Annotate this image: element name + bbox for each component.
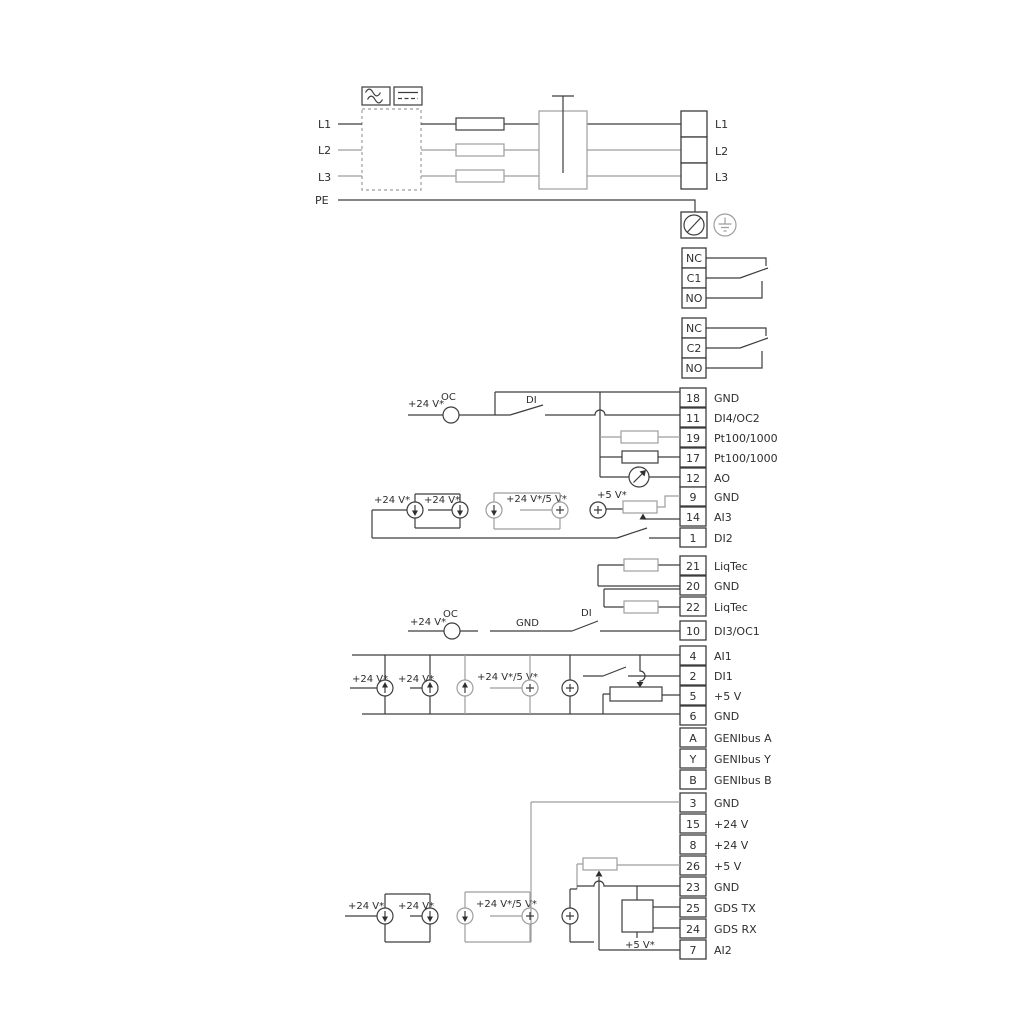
svg-text:3: 3 xyxy=(690,797,697,810)
relay2-block: NC C2 NO xyxy=(682,318,768,378)
svg-text:5: 5 xyxy=(690,690,697,703)
digital-input-4-wiring: +24 V* OC DI xyxy=(408,392,680,487)
svg-text:LiqTec: LiqTec xyxy=(714,601,748,614)
ai1-wiring: +24 V* +24 V* +24 V*/5 V* xyxy=(350,655,680,714)
terminal-row: 10DI3/OC1 xyxy=(680,621,760,640)
terminal-row: 7AI2 xyxy=(680,940,732,959)
svg-text:GND: GND xyxy=(714,710,739,723)
svg-text:+5 V: +5 V xyxy=(714,690,742,703)
svg-text:14: 14 xyxy=(686,511,700,524)
svg-text:GND: GND xyxy=(714,580,739,593)
mains-input-section: L1 L2 L3 PE xyxy=(315,87,736,238)
mains-output-label: L1 xyxy=(715,118,728,131)
terminal-row: 23GND xyxy=(680,877,739,896)
svg-text:+24 V: +24 V xyxy=(714,839,749,852)
v24-label: +24 V* xyxy=(398,901,434,912)
terminal-row: 21LiqTec xyxy=(680,556,748,575)
svg-text:15: 15 xyxy=(686,818,700,831)
v5-label: +5 V* xyxy=(597,490,627,501)
gnd-label: GND xyxy=(516,618,539,629)
svg-text:B: B xyxy=(689,774,697,787)
svg-text:9: 9 xyxy=(690,491,697,504)
relay-terminal: C2 xyxy=(687,342,702,355)
svg-text:23: 23 xyxy=(686,881,700,894)
di1-switch xyxy=(583,667,680,676)
wire-l3 xyxy=(338,166,681,182)
svg-text:GENIbus A: GENIbus A xyxy=(714,732,772,745)
relay-contact xyxy=(706,258,768,298)
open-collector-icon xyxy=(443,407,459,423)
svg-text:AO: AO xyxy=(714,472,730,485)
ai2-gds-wiring: +5 V* +24 V* +24 V* +24 V*/5 V* xyxy=(345,802,680,951)
svg-text:19: 19 xyxy=(686,432,700,445)
terminal-row: 9GND xyxy=(680,487,739,506)
voltage-source-icon xyxy=(562,908,578,924)
gds-sensor-box: +5 V* xyxy=(622,886,680,951)
current-source-icon xyxy=(377,680,393,696)
pe-terminal xyxy=(681,212,707,238)
svg-text:Pt100/1000: Pt100/1000 xyxy=(714,452,778,465)
terminal-row: 8+24 V xyxy=(680,835,749,854)
svg-text:GND: GND xyxy=(714,797,739,810)
fuse xyxy=(456,144,504,156)
ac-symbol-icon xyxy=(362,87,390,105)
svg-text:GND: GND xyxy=(714,491,739,504)
terminal-row: 11DI4/OC2 xyxy=(680,408,760,427)
terminal-row: AGENIbus A xyxy=(680,728,772,747)
terminal-row: 25GDS TX xyxy=(680,898,756,917)
mains-input-label: L2 xyxy=(318,144,331,157)
di2-switch xyxy=(372,510,680,538)
current-source-icon xyxy=(377,908,393,924)
svg-text:26: 26 xyxy=(686,860,700,873)
terminal-row: BGENIbus B xyxy=(680,770,772,789)
voltage-source-icon xyxy=(562,680,578,696)
ai3-wiring: +24 V* +24 V* +24 V*/5 V* +5 V* xyxy=(372,490,680,538)
svg-text:DI1: DI1 xyxy=(714,670,733,683)
current-source-icon xyxy=(407,502,423,518)
main-switch xyxy=(539,96,587,189)
di-label: DI xyxy=(526,395,537,406)
svg-text:+24 V: +24 V xyxy=(714,818,749,831)
terminal-row: YGENIbus Y xyxy=(680,749,771,768)
terminal-row: 6GND xyxy=(680,706,739,725)
current-source-icon xyxy=(422,680,438,696)
terminal-row: 2DI1 xyxy=(680,666,733,685)
svg-text:1: 1 xyxy=(690,532,697,545)
relay-terminal: NO xyxy=(686,362,703,375)
filter-box xyxy=(362,109,421,190)
voltage-source-icon xyxy=(590,502,606,518)
current-source-icon xyxy=(457,680,473,696)
di-label: DI xyxy=(581,608,592,619)
dc-symbol-icon xyxy=(394,87,422,105)
svg-text:18: 18 xyxy=(686,392,700,405)
svg-text:8: 8 xyxy=(690,839,697,852)
svg-text:GDS RX: GDS RX xyxy=(714,923,757,936)
svg-text:+5 V: +5 V xyxy=(714,860,742,873)
wire-l1 xyxy=(338,114,681,130)
mains-output-label: L2 xyxy=(715,145,728,158)
fuse xyxy=(456,170,504,182)
voltage-source-icon xyxy=(522,908,538,924)
relay-terminal: NC xyxy=(686,322,702,335)
svg-text:DI3/OC1: DI3/OC1 xyxy=(714,625,760,638)
earth-icon xyxy=(714,214,736,236)
relay-terminal: C1 xyxy=(687,272,702,285)
v24-label: +24 V* xyxy=(352,674,388,685)
terminal-row: 18GND xyxy=(680,388,739,407)
terminal-strip: 18GND 11DI4/OC2 19Pt100/1000 17Pt100/100… xyxy=(680,388,778,959)
svg-text:17: 17 xyxy=(686,452,700,465)
svg-text:20: 20 xyxy=(686,580,700,593)
terminal-row: 17Pt100/1000 xyxy=(680,448,778,467)
mains-input-label: PE xyxy=(315,194,329,207)
svg-text:AI2: AI2 xyxy=(714,944,732,957)
svg-text:7: 7 xyxy=(690,944,697,957)
relay-terminal: NC xyxy=(686,252,702,265)
oc-label: OC xyxy=(441,392,456,403)
terminal-row: 5+5 V xyxy=(680,686,742,705)
mains-input-label: L3 xyxy=(318,171,331,184)
relay-terminal: NO xyxy=(686,292,703,305)
analog-output-meter-icon xyxy=(600,467,680,487)
terminal-row: 3GND xyxy=(680,793,739,812)
svg-text:LiqTec: LiqTec xyxy=(714,560,748,573)
liqtec-wiring xyxy=(598,559,680,613)
open-collector-icon xyxy=(444,623,460,639)
pt100-sensor-2 xyxy=(600,451,680,463)
terminal-row: 24GDS RX xyxy=(680,919,757,938)
svg-text:GND: GND xyxy=(714,881,739,894)
v24-label: +24 V* xyxy=(408,399,444,410)
pt100-sensor-1 xyxy=(600,431,680,443)
relay-contact xyxy=(706,328,768,368)
svg-text:22: 22 xyxy=(686,601,700,614)
svg-text:10: 10 xyxy=(686,625,700,638)
svg-text:25: 25 xyxy=(686,902,700,915)
potentiometer xyxy=(603,655,680,714)
svg-text:11: 11 xyxy=(686,412,700,425)
svg-text:4: 4 xyxy=(690,650,697,663)
terminal-row: 26+5 V xyxy=(680,856,742,875)
v5-label: +5 V* xyxy=(625,940,655,951)
svg-text:12: 12 xyxy=(686,472,700,485)
svg-text:21: 21 xyxy=(686,560,700,573)
current-source-icon xyxy=(486,502,502,518)
svg-text:GENIbus Y: GENIbus Y xyxy=(714,753,771,766)
svg-text:24: 24 xyxy=(686,923,700,936)
v24-5v-label: +24 V*/5 V* xyxy=(477,672,538,683)
mains-output-label: L3 xyxy=(715,171,728,184)
svg-text:6: 6 xyxy=(690,710,697,723)
relay1-block: NC C1 NO xyxy=(682,248,768,308)
svg-text:GDS TX: GDS TX xyxy=(714,902,756,915)
svg-text:Pt100/1000: Pt100/1000 xyxy=(714,432,778,445)
v24-label: +24 V* xyxy=(410,617,446,628)
terminal-row: 1DI2 xyxy=(680,528,733,547)
terminal-row: 22LiqTec xyxy=(680,597,748,616)
wire-l2 xyxy=(338,140,681,156)
svg-text:AI1: AI1 xyxy=(714,650,732,663)
terminal-row: 15+24 V xyxy=(680,814,749,833)
output-terminal-block: L1 L2 L3 xyxy=(681,111,728,189)
oc-label: OC xyxy=(443,609,458,620)
svg-text:2: 2 xyxy=(690,670,697,683)
liqtec-sensor-1 xyxy=(624,559,658,571)
fuse xyxy=(456,118,504,130)
v24-label: +24 V* xyxy=(374,495,410,506)
svg-text:Y: Y xyxy=(689,753,697,766)
terminal-row: 4AI1 xyxy=(680,646,732,665)
terminal-row: 14AI3 xyxy=(680,507,732,526)
svg-text:GND: GND xyxy=(714,392,739,405)
wire-pe xyxy=(338,200,695,212)
svg-text:GENIbus B: GENIbus B xyxy=(714,774,772,787)
terminal-row: 12AO xyxy=(680,468,730,487)
mains-input-label: L1 xyxy=(318,118,331,131)
svg-text:DI4/OC2: DI4/OC2 xyxy=(714,412,760,425)
terminal-row: 19Pt100/1000 xyxy=(680,428,778,447)
terminal-row: 20GND xyxy=(680,576,739,595)
svg-text:DI2: DI2 xyxy=(714,532,733,545)
svg-text:AI3: AI3 xyxy=(714,511,732,524)
v24-5v-label: +24 V*/5 V* xyxy=(506,494,567,505)
current-source-icon xyxy=(457,908,473,924)
liqtec-sensor-2 xyxy=(624,601,658,613)
wiring-diagram: L1 L2 L3 PE xyxy=(0,0,1024,1024)
svg-text:A: A xyxy=(689,732,697,745)
